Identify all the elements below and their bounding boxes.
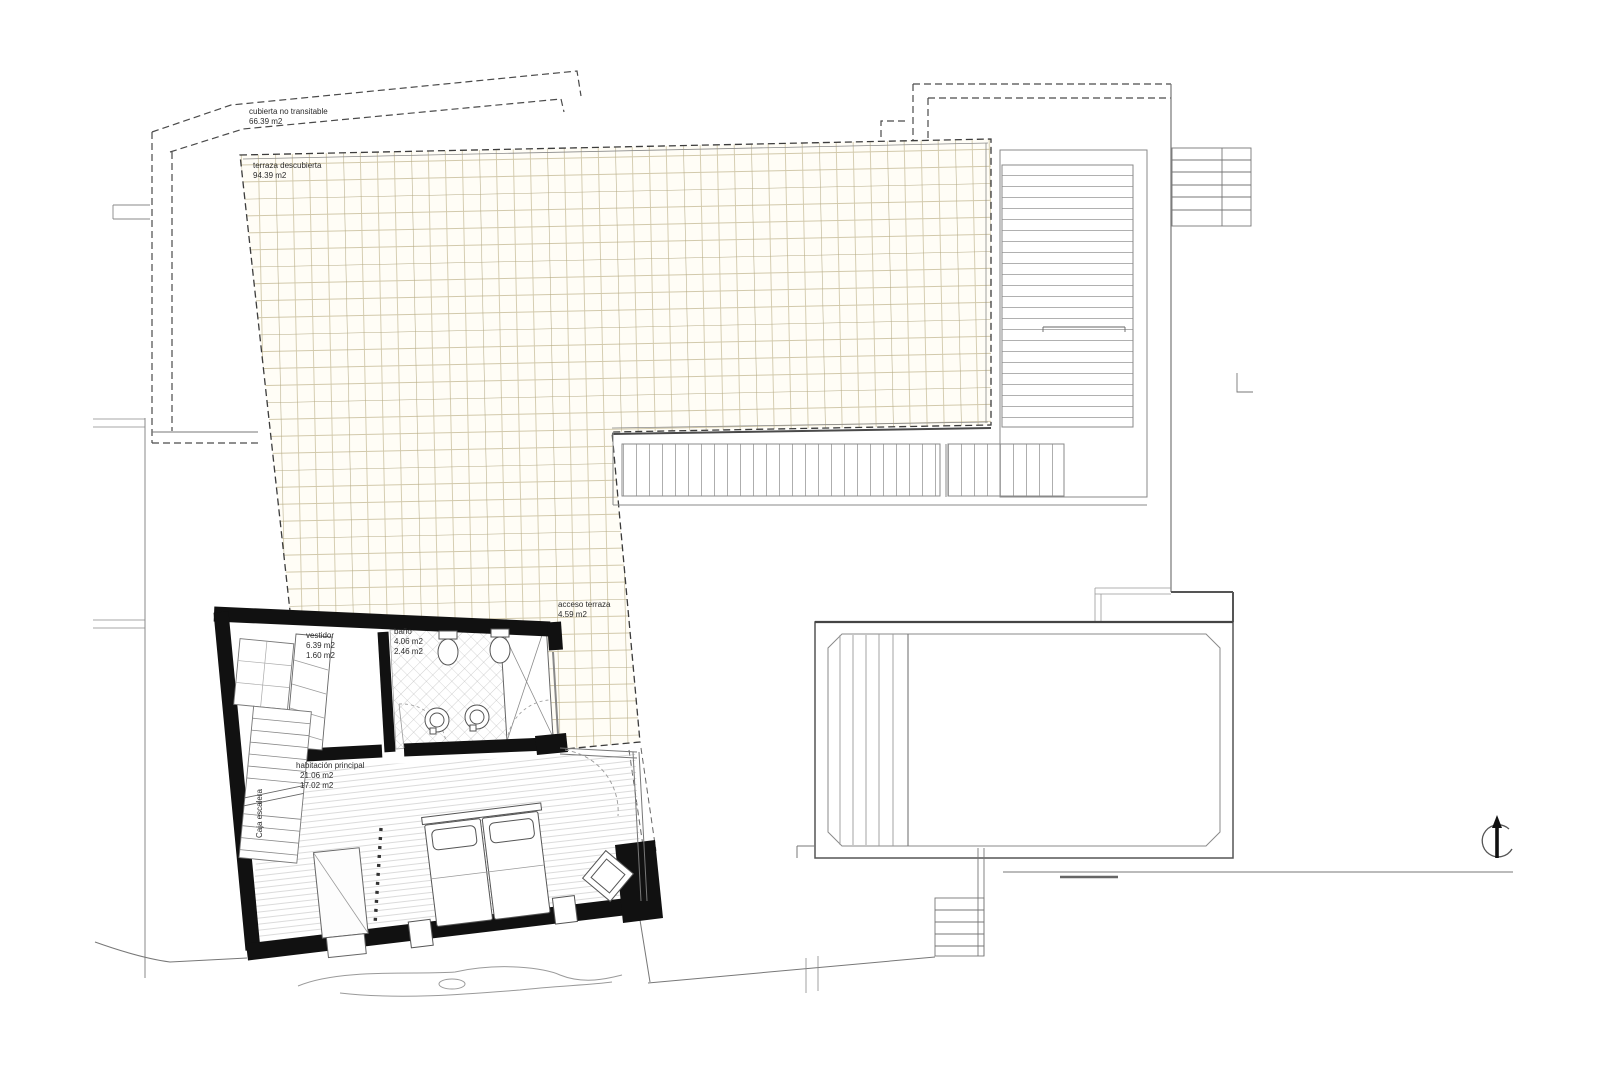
floor-plan-sheet: cubierta no transitable 66.39 m2 terraza… (0, 0, 1600, 1067)
toilet-icon (438, 639, 458, 665)
terrace-access-label: acceso terraza (558, 600, 611, 609)
floor-plan-drawing: cubierta no transitable 66.39 m2 terraza… (0, 0, 1600, 1067)
site-lines-right (640, 872, 1513, 993)
bath-area: 4.06 m2 (394, 637, 423, 646)
exterior-stair-bottom (935, 848, 984, 956)
roof-outline-right (881, 84, 1171, 148)
nightstand (552, 896, 577, 924)
terrace-access-area: 4.59 m2 (558, 610, 587, 619)
bedroom-area: 21.06 m2 (300, 771, 334, 780)
stairwell-label: Caja escalera (255, 789, 264, 838)
roof-area: 66.39 m2 (249, 117, 283, 126)
exterior-stair-top (1172, 148, 1253, 392)
toilet-tank (439, 631, 457, 639)
sketch-lines (298, 967, 622, 997)
north-arrow-icon (1482, 815, 1512, 858)
dressing-area-alt: 1.60 m2 (306, 651, 335, 660)
bath-area-alt: 2.46 m2 (394, 647, 423, 656)
dressing-area: 6.39 m2 (306, 641, 335, 650)
terrace-area: 94.39 m2 (253, 171, 287, 180)
nightstand (408, 919, 433, 947)
bidet-icon (490, 637, 510, 663)
pool (797, 622, 1233, 858)
left-notch (113, 205, 150, 219)
bath-label: baño (394, 627, 412, 636)
roof-label: cubierta no transitable (249, 107, 328, 116)
bedroom-label: habitación principal (296, 761, 365, 770)
bidet-tank (491, 629, 509, 637)
shower (500, 623, 553, 741)
dressing-label: vestidor (306, 631, 334, 640)
terrace-label: terraza descubierta (253, 161, 322, 170)
bedroom-area-alt: 17.02 m2 (300, 781, 334, 790)
